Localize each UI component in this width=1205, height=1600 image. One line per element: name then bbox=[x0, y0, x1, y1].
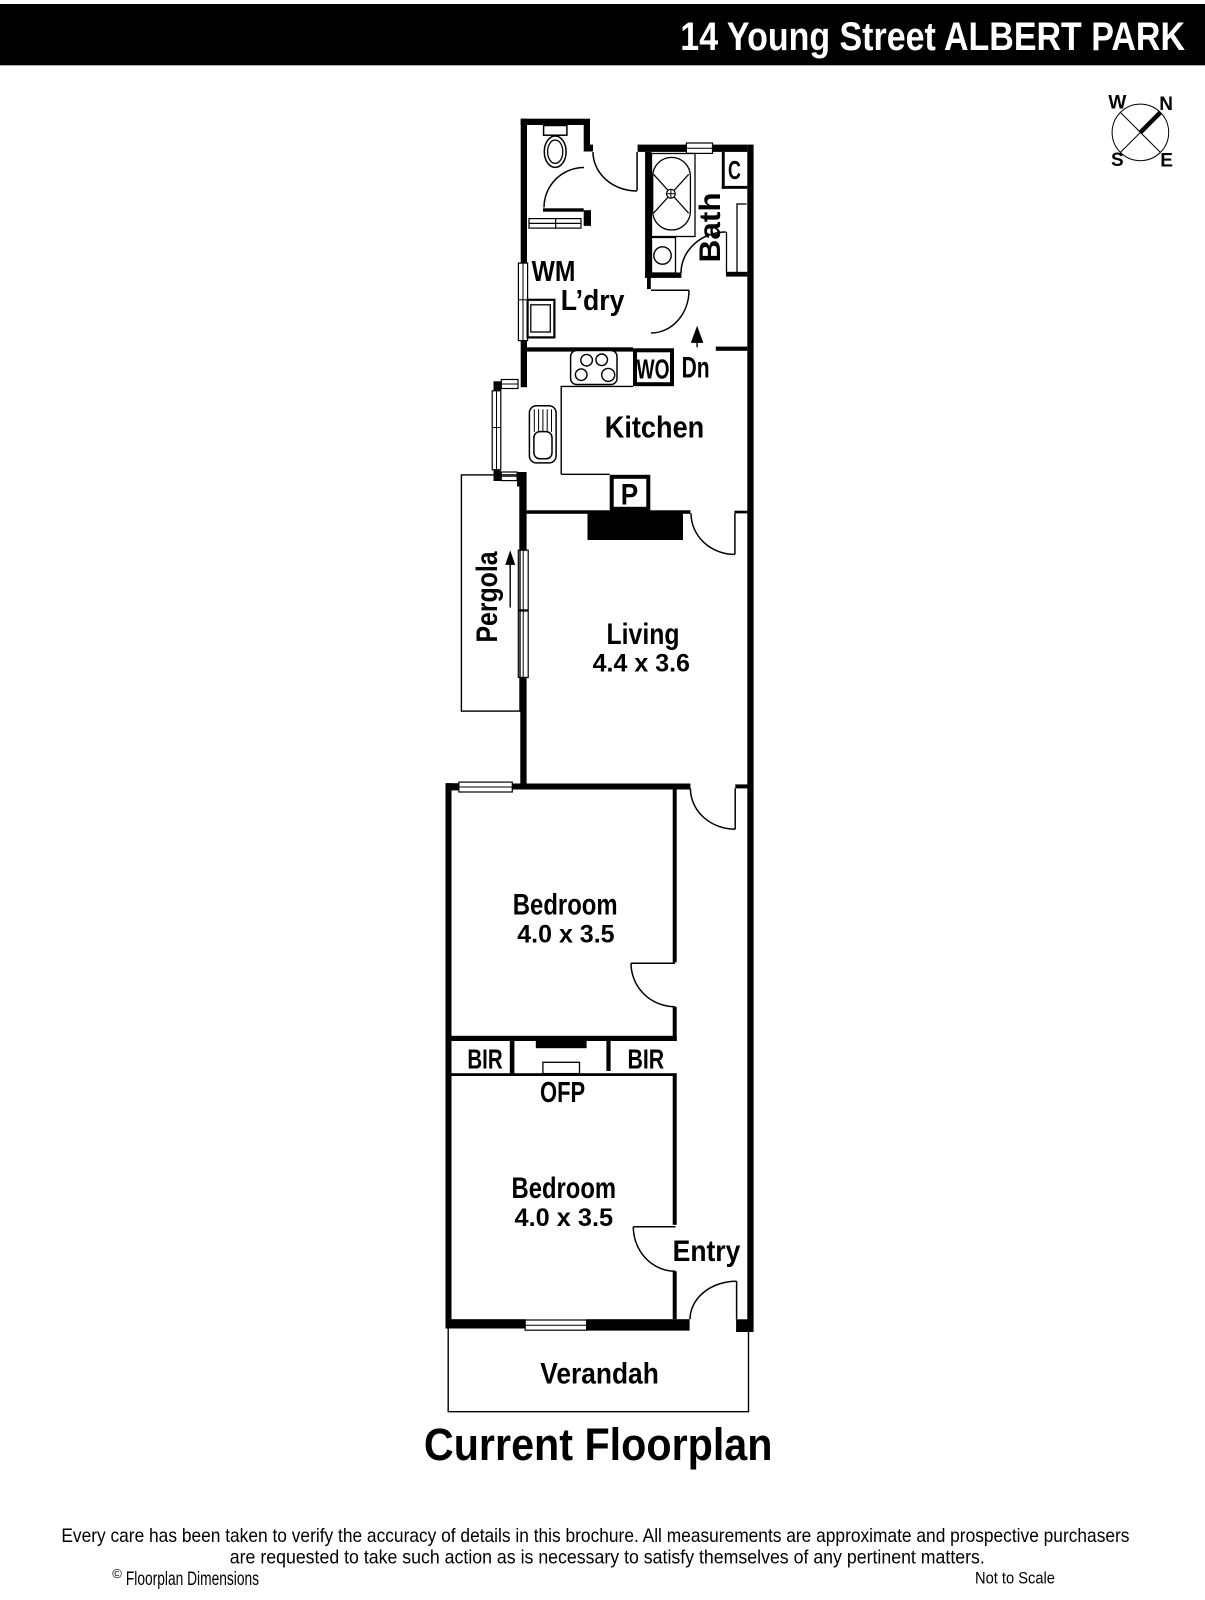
svg-text:4.0 x 3.5: 4.0 x 3.5 bbox=[517, 921, 614, 949]
svg-text:4.4 x 3.6: 4.4 x 3.6 bbox=[593, 649, 690, 677]
svg-text:N: N bbox=[1159, 94, 1173, 115]
svg-text:L’dry: L’dry bbox=[561, 284, 625, 316]
svg-text:Pergola: Pergola bbox=[470, 551, 504, 643]
svg-text:Not to Scale: Not to Scale bbox=[975, 1570, 1055, 1588]
svg-text:BIR: BIR bbox=[467, 1044, 502, 1075]
svg-text:Floorplan Dimensions: Floorplan Dimensions bbox=[126, 1568, 259, 1590]
svg-text:Verandah: Verandah bbox=[540, 1356, 659, 1390]
svg-text:Current Floorplan: Current Floorplan bbox=[424, 1420, 773, 1470]
svg-text:P: P bbox=[621, 478, 638, 511]
svg-text:Bedroom: Bedroom bbox=[512, 1170, 617, 1204]
svg-text:©: © bbox=[112, 1566, 122, 1581]
svg-text:W: W bbox=[1108, 93, 1126, 114]
svg-text:Bath: Bath bbox=[693, 192, 727, 262]
svg-text:C: C bbox=[728, 156, 741, 185]
svg-text:WM: WM bbox=[532, 255, 576, 287]
svg-text:Dn: Dn bbox=[682, 352, 710, 384]
svg-text:4.0 x 3.5: 4.0 x 3.5 bbox=[515, 1204, 614, 1232]
svg-text:OFP: OFP bbox=[540, 1077, 585, 1109]
svg-text:E: E bbox=[1160, 151, 1173, 172]
svg-text:Kitchen: Kitchen bbox=[605, 411, 704, 445]
svg-text:S: S bbox=[1111, 150, 1124, 171]
svg-text:BIR: BIR bbox=[627, 1044, 664, 1076]
svg-text:Bedroom: Bedroom bbox=[513, 887, 618, 921]
svg-text:Living: Living bbox=[606, 617, 679, 651]
svg-text:Entry: Entry bbox=[673, 1233, 741, 1267]
svg-text:14 Young Street ALBERT PARK: 14 Young Street ALBERT PARK bbox=[680, 14, 1185, 59]
svg-text:are requested to take such act: are requested to take such action as is … bbox=[230, 1546, 985, 1568]
svg-text:WO: WO bbox=[637, 354, 670, 386]
svg-text:Every care has been taken to v: Every care has been taken to verify the … bbox=[61, 1525, 1129, 1546]
